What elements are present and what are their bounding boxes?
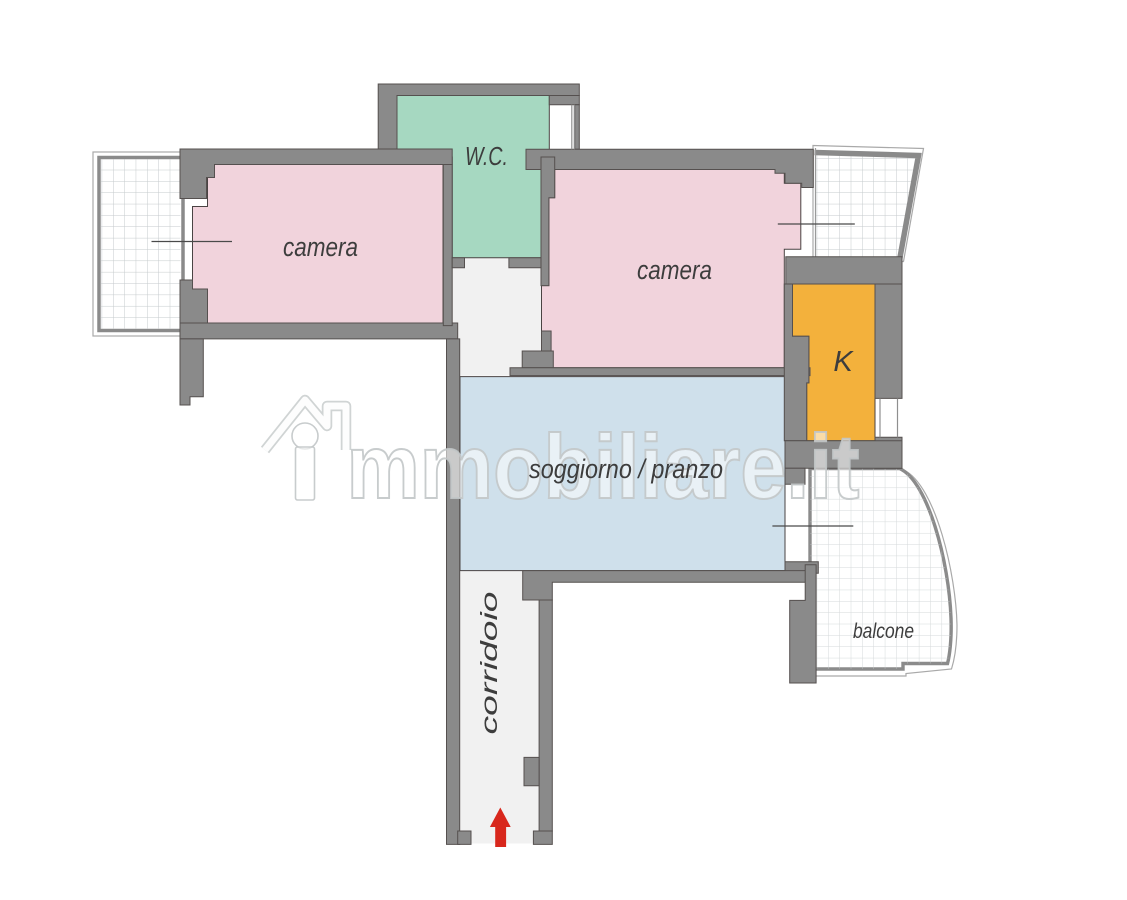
svg-text:balcone: balcone	[853, 620, 914, 643]
svg-text:camera: camera	[637, 255, 712, 285]
svg-text:camera: camera	[283, 232, 358, 262]
svg-text:soggiorno / pranzo: soggiorno / pranzo	[529, 454, 723, 484]
svg-text:K: K	[833, 346, 854, 378]
svg-text:corridoio: corridoio	[476, 591, 502, 734]
svg-text:W.C.: W.C.	[465, 141, 508, 171]
